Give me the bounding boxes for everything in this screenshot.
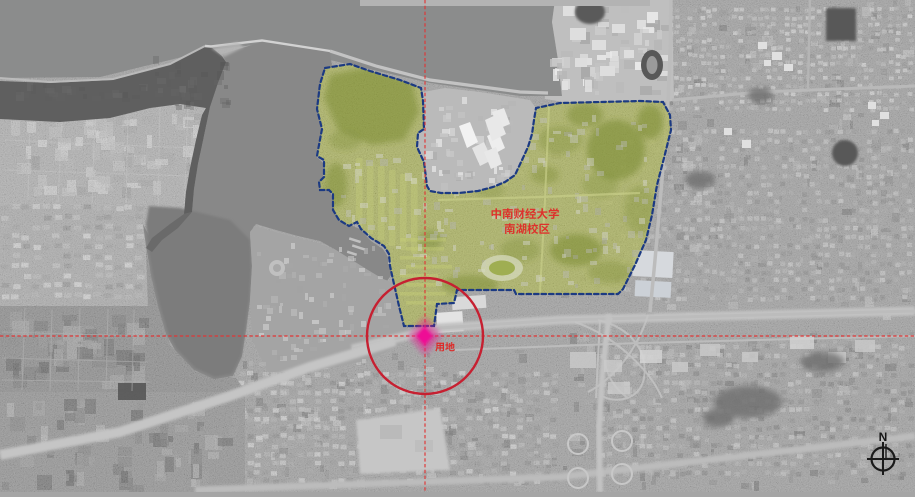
svg-text:N: N — [879, 430, 888, 444]
